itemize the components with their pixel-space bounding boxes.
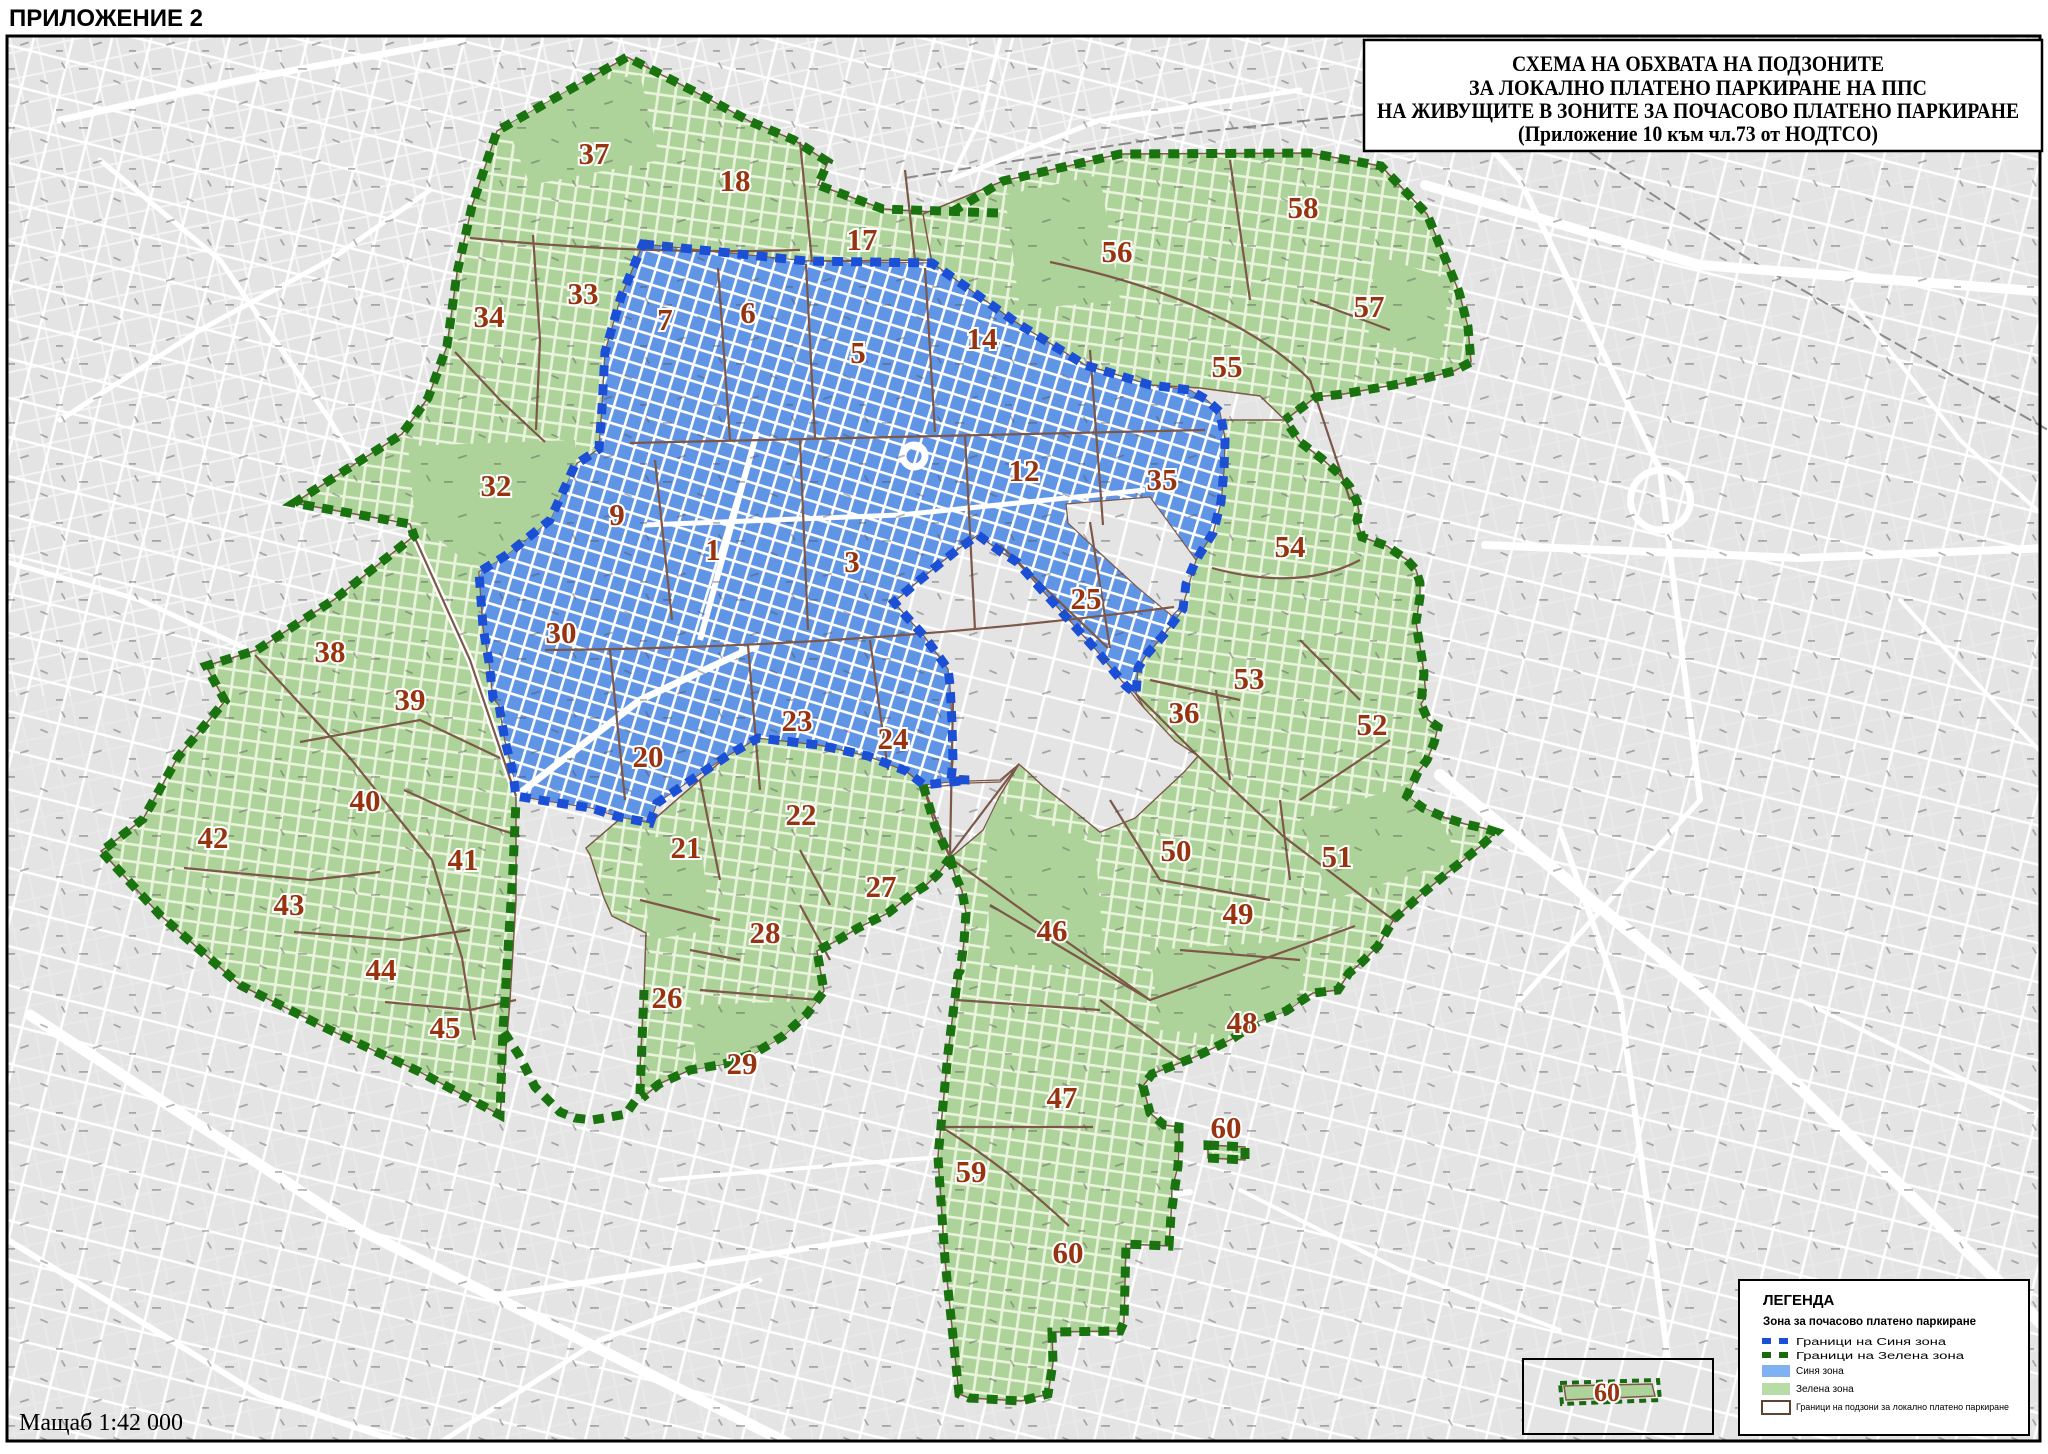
svg-text:44: 44 — [366, 952, 397, 987]
svg-text:45: 45 — [430, 1010, 461, 1045]
svg-text:12: 12 — [1009, 453, 1040, 488]
svg-text:57: 57 — [1354, 289, 1385, 324]
svg-text:Граници на подзони за локално: Граници на подзони за локално платено па… — [1796, 1402, 2009, 1412]
svg-text:17: 17 — [847, 222, 878, 257]
svg-text:23: 23 — [782, 703, 813, 738]
svg-text:46: 46 — [1037, 913, 1068, 948]
svg-text:39: 39 — [395, 682, 426, 717]
svg-text:26: 26 — [652, 980, 683, 1015]
svg-text:32: 32 — [481, 468, 512, 503]
svg-text:6: 6 — [740, 295, 756, 330]
svg-text:27: 27 — [866, 869, 897, 904]
svg-text:Синя зона: Синя зона — [1796, 1366, 1844, 1377]
svg-text:28: 28 — [750, 915, 781, 950]
svg-text:55: 55 — [1212, 349, 1243, 384]
svg-text:9: 9 — [609, 497, 625, 532]
svg-text:40: 40 — [350, 783, 381, 818]
svg-text:53: 53 — [1234, 661, 1265, 696]
svg-text:42: 42 — [198, 820, 229, 855]
svg-text:22: 22 — [786, 797, 817, 832]
svg-text:3: 3 — [844, 544, 860, 579]
svg-text:Граници на Синя зона: Граници на Синя зона — [1796, 1337, 1947, 1348]
svg-text:25: 25 — [1071, 581, 1102, 616]
svg-text:48: 48 — [1227, 1005, 1258, 1040]
svg-text:51: 51 — [1322, 839, 1353, 874]
svg-text:21: 21 — [671, 830, 702, 865]
svg-text:30: 30 — [546, 615, 577, 650]
svg-text:50: 50 — [1161, 833, 1192, 868]
svg-text:47: 47 — [1047, 1080, 1078, 1115]
svg-text:58: 58 — [1288, 190, 1319, 225]
svg-text:14: 14 — [967, 321, 998, 356]
svg-text:49: 49 — [1223, 896, 1254, 931]
svg-text:60: 60 — [1594, 1378, 1620, 1407]
svg-text:41: 41 — [448, 842, 479, 877]
svg-text:60: 60 — [1211, 1110, 1242, 1145]
svg-text:Граници на Зелена зона: Граници на Зелена зона — [1796, 1351, 1965, 1362]
svg-text:(Приложение 10 към чл.73 от НО: (Приложение 10 към чл.73 от НОДТСО) — [1518, 121, 1878, 146]
svg-text:ПРИЛОЖЕНИЕ 2: ПРИЛОЖЕНИЕ 2 — [9, 5, 203, 32]
svg-text:36: 36 — [1169, 695, 1200, 730]
svg-text:29: 29 — [727, 1046, 758, 1081]
svg-text:Зелена зона: Зелена зона — [1796, 1384, 1854, 1395]
svg-text:35: 35 — [1147, 462, 1178, 497]
svg-text:37: 37 — [579, 136, 610, 171]
svg-text:7: 7 — [657, 302, 673, 337]
svg-text:5: 5 — [850, 335, 866, 370]
svg-text:34: 34 — [474, 299, 505, 334]
svg-text:59: 59 — [956, 1154, 987, 1189]
svg-text:НА ЖИВУЩИТЕ В ЗОНИТЕ ЗА ПОЧАСО: НА ЖИВУЩИТЕ В ЗОНИТЕ ЗА ПОЧАСОВО ПЛАТЕНО… — [1377, 98, 2019, 123]
svg-text:ЛЕГЕНДА: ЛЕГЕНДА — [1763, 1292, 1835, 1309]
svg-text:54: 54 — [1275, 529, 1306, 564]
svg-text:24: 24 — [878, 721, 909, 756]
svg-text:ЗА ЛОКАЛНО ПЛАТЕНО ПАРКИРАНЕ Н: ЗА ЛОКАЛНО ПЛАТЕНО ПАРКИРАНЕ НА ППС — [1469, 75, 1927, 100]
svg-text:52: 52 — [1357, 707, 1388, 742]
svg-text:60: 60 — [1053, 1235, 1084, 1270]
svg-text:Мащаб 1:42 000: Мащаб 1:42 000 — [19, 1410, 183, 1436]
svg-text:56: 56 — [1102, 234, 1133, 269]
svg-text:33: 33 — [568, 276, 599, 311]
svg-text:43: 43 — [274, 887, 305, 922]
svg-text:20: 20 — [633, 739, 664, 774]
svg-text:СХЕМА НА ОБХВАТА НА ПОДЗОНИТЕ: СХЕМА НА ОБХВАТА НА ПОДЗОНИТЕ — [1512, 51, 1884, 76]
svg-text:Зона за почасово платено парки: Зона за почасово платено паркиране — [1763, 1316, 1976, 1328]
svg-text:1: 1 — [705, 532, 721, 567]
svg-text:38: 38 — [315, 634, 346, 669]
svg-text:18: 18 — [720, 163, 751, 198]
